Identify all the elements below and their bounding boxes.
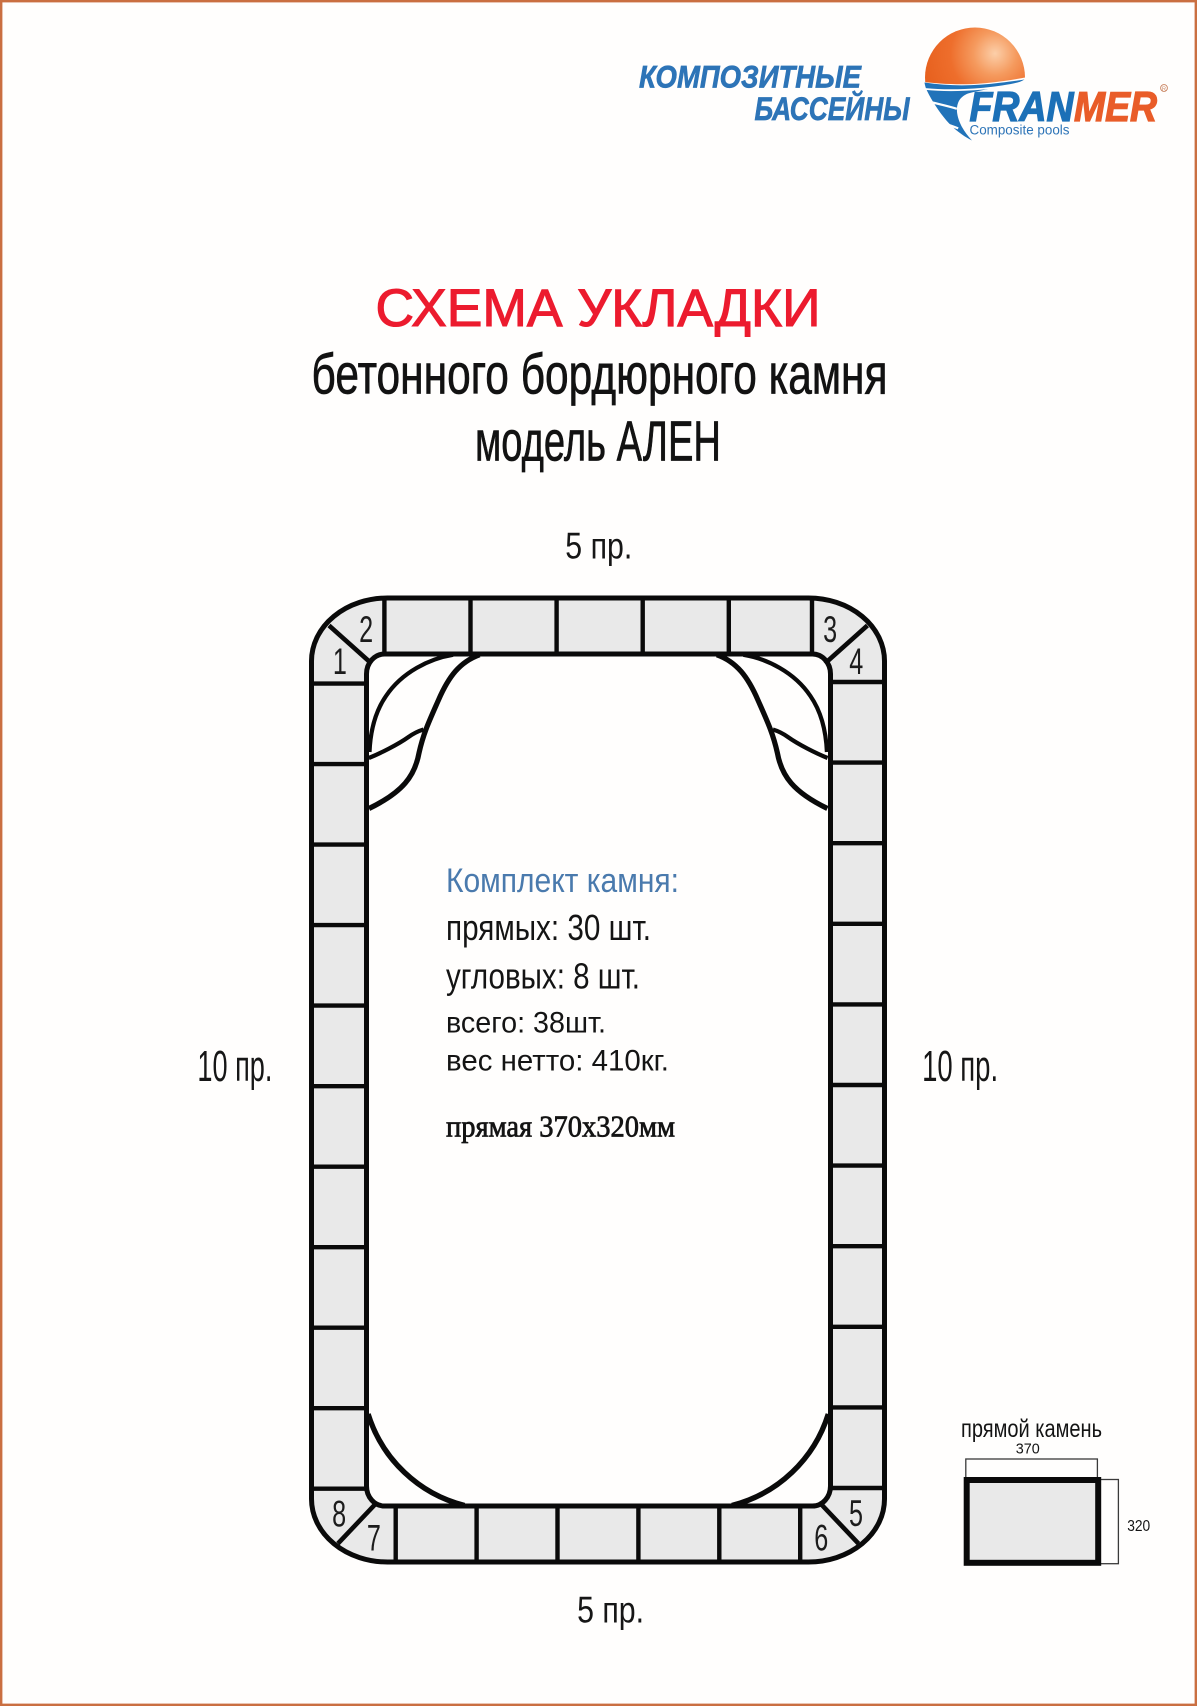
- svg-text:бетонного бордюрного камня: бетонного бордюрного камня: [312, 342, 888, 406]
- svg-text:прямых: 30 шт.: прямых: 30 шт.: [446, 907, 651, 948]
- svg-text:Комплект камня:: Комплект камня:: [446, 862, 679, 900]
- svg-text:угловых: 8 шт.: угловых: 8 шт.: [446, 955, 640, 996]
- svg-text:5 пр.: 5 пр.: [565, 526, 632, 567]
- svg-text:7: 7: [367, 1518, 381, 1559]
- svg-text:вес нетто: 410кг.: вес нетто: 410кг.: [446, 1045, 669, 1078]
- svg-text:5: 5: [849, 1493, 863, 1534]
- svg-text:320: 320: [1127, 1518, 1150, 1535]
- svg-text:всего: 38шт.: всего: 38шт.: [446, 1006, 606, 1039]
- svg-text:1: 1: [333, 641, 347, 682]
- svg-text:Composite pools: Composite pools: [970, 122, 1070, 137]
- svg-text:10 пр.: 10 пр.: [922, 1042, 998, 1091]
- svg-text:БАССЕЙНЫ: БАССЕЙНЫ: [755, 89, 911, 127]
- svg-text:R: R: [1162, 86, 1166, 92]
- svg-text:6: 6: [814, 1518, 828, 1559]
- svg-text:КОМПОЗИТНЫЕ: КОМПОЗИТНЫЕ: [639, 59, 862, 95]
- svg-text:СХЕМА УКЛАДКИ: СХЕМА УКЛАДКИ: [376, 279, 821, 338]
- svg-text:прямая 370х320мм: прямая 370х320мм: [446, 1110, 675, 1144]
- svg-text:4: 4: [849, 641, 863, 682]
- svg-text:5 пр.: 5 пр.: [577, 1590, 644, 1631]
- svg-text:10 пр.: 10 пр.: [197, 1042, 272, 1091]
- svg-text:прямой камень: прямой камень: [961, 1415, 1102, 1443]
- svg-text:MER: MER: [1074, 83, 1158, 130]
- svg-text:370: 370: [1016, 1441, 1040, 1458]
- svg-text:2: 2: [359, 609, 373, 650]
- svg-text:8: 8: [332, 1494, 346, 1535]
- svg-text:3: 3: [823, 609, 837, 650]
- svg-text:модель АЛЕН: модель АЛЕН: [475, 410, 721, 474]
